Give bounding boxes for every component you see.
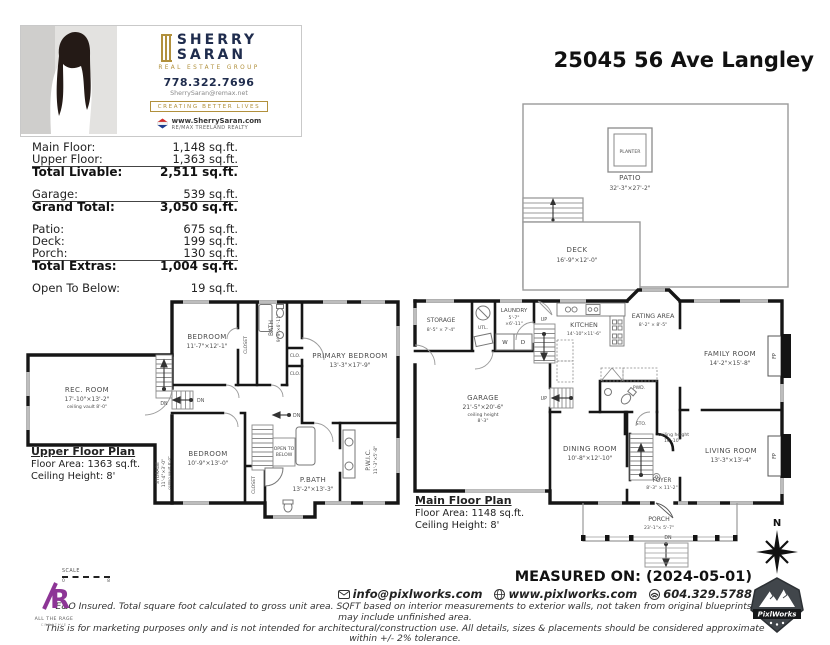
bedroom-bottom-label: BEDROOM: [188, 450, 227, 458]
closet-top-label: CLOSET: [243, 336, 249, 354]
primary-bedroom-label: PRIMARY BEDROOM: [312, 352, 387, 360]
rec-room-note: ceiling vault 8'-0": [67, 404, 107, 410]
family-room-label: FAMILY ROOM: [704, 350, 756, 358]
contact-email-text: info@pixlworks.com: [353, 587, 483, 601]
storage-note: ceiling vault 8'-0": [167, 456, 172, 490]
deck-outline: [523, 222, 640, 290]
globe-icon: [494, 589, 505, 600]
fireplace-label: FP: [772, 453, 778, 459]
row-label: Garage:: [32, 189, 78, 201]
table-row-total: Grand Total:3,050 sq.ft.: [32, 202, 238, 214]
main-plan-title-block: Main Floor Plan Floor Area: 1148 sq.ft. …: [415, 494, 524, 531]
kitchen-label: KITCHEN: [570, 321, 598, 329]
upper-plan-area: Floor Area: 1363 sq.ft.: [31, 459, 140, 470]
upper-plan-ceiling: Ceiling Height: 8': [31, 471, 140, 482]
bedroom-top-dims: 11'-7"×12'-1": [186, 343, 227, 350]
scale-start: 0: [62, 579, 65, 584]
disclaimer-line1: E&O Insured. Total square foot calculate…: [45, 602, 765, 624]
row-label: Grand Total:: [32, 202, 115, 214]
up-label: UP: [541, 396, 548, 402]
area-summary-table: Main Floor:1,148 sq.ft. Upper Floor:1,36…: [32, 142, 238, 295]
agent-last-name: SARAN: [177, 48, 257, 63]
photo-wall: [21, 26, 55, 134]
main-plan-title: Main Floor Plan: [415, 494, 524, 507]
foyer-label: FOYER: [653, 478, 672, 484]
storage-label: STORAGE: [155, 462, 161, 484]
agent-info: SHERRY SARAN REAL ESTATE GROUP 778.322.7…: [117, 26, 301, 136]
rec-room-label: REC. ROOM: [65, 386, 109, 394]
patio-deck-plan: PLANTER PATIO 32'-3"×27'-2" DN DECK 16'-…: [515, 96, 800, 292]
storage-label: STORAGE: [427, 317, 456, 324]
floorplan-flyer: { "page": {"address": "25045 56 Ave Lang…: [0, 0, 830, 641]
contact-row: info@pixlworks.com www.pixlworks.com 604…: [338, 587, 752, 601]
rec-room-dims: 17'-10"×13'-2": [65, 396, 110, 403]
dining-room-label: DINING ROOM: [563, 445, 617, 453]
row-label: Porch:: [32, 248, 68, 260]
dn-label: DN: [197, 398, 205, 404]
bath-label: BATH: [268, 320, 275, 336]
creative-studio-logo: R ALL THE RAGE CREATIVE: [24, 580, 84, 627]
svg-text:R: R: [50, 585, 70, 612]
agency-group-label: REAL ESTATE GROUP: [158, 65, 259, 71]
property-address: 25045 56 Ave Langley: [554, 48, 814, 72]
stair-note1: ceiling height: [658, 432, 689, 438]
primary-bedroom-dims: 13'-3"×17'-9": [329, 362, 370, 369]
bedroom-bottom-dims: 10'-9"×13'-0": [187, 460, 228, 467]
row-value: 1,363 sq.ft.: [172, 154, 238, 166]
row-value: 539 sq.ft.: [183, 189, 238, 201]
row-label: Total Livable:: [32, 167, 122, 179]
contact-website-text: www.pixlworks.com: [508, 587, 637, 601]
closet-bottom-label: CLOSET: [251, 476, 257, 494]
patio-label: PATIO: [619, 174, 641, 182]
creative-studio-sub: CREATIVE: [24, 622, 84, 627]
planter: PLANTER: [608, 128, 652, 172]
open-to-below-line2: BELOW: [276, 452, 293, 458]
eating-area-dims: 8'-2" × 8'-5": [639, 322, 668, 328]
up-label: UP: [541, 317, 548, 323]
contact-email[interactable]: info@pixlworks.com: [338, 587, 483, 601]
garage-note1: ceiling height: [467, 412, 498, 418]
agent-photo: [21, 26, 117, 134]
dn-label: DN: [160, 401, 168, 407]
powder-label: PWD.: [633, 385, 645, 391]
laundry-dims2: ×6'-11": [505, 321, 523, 327]
p-bath-dims: 13'-2"×13'-3": [292, 486, 333, 493]
agent-email[interactable]: SherrySaran@remax.net: [170, 90, 248, 97]
scale-bar: SCALE 0 8: [62, 569, 114, 584]
dn-label: DN: [293, 413, 301, 419]
utility-label: UTL.: [478, 325, 488, 331]
fireplace-label: FP: [772, 353, 778, 359]
contact-website[interactable]: www.pixlworks.com: [494, 587, 637, 601]
contact-phone[interactable]: 604.329.5788: [649, 587, 752, 601]
main-fireplaces: FP FP: [768, 334, 791, 478]
dining-room-dims: 10'-8"×12'-10": [568, 455, 613, 462]
compass-rose: N: [752, 512, 802, 574]
living-room-dims: 13'-3"×13'-4": [710, 457, 751, 464]
main-plan-area: Floor Area: 1148 sq.ft.: [415, 508, 524, 519]
storage-dims: 8'-5" × 7'-4": [427, 327, 456, 333]
living-room-label: LIVING ROOM: [705, 447, 757, 455]
agent-brokerage: RE/MAX TREELAND REALTY: [172, 125, 262, 131]
family-room-dims: 14'-2"×15'-8": [709, 360, 750, 367]
p-bath-label: P.BATH: [300, 476, 326, 484]
north-label: N: [773, 518, 781, 529]
dryer-label: D: [521, 340, 525, 346]
row-value: 3,050 sq.ft.: [160, 202, 238, 214]
garage-note2: 8'-3": [478, 418, 489, 424]
main-floor-plan: FP FP STORAGE 8'-5" × 7'-4" UTL. LAUNDRY…: [410, 288, 810, 578]
garage-label: GARAGE: [467, 394, 499, 402]
main-porch: [581, 503, 738, 567]
row-label: Total Extras:: [32, 261, 117, 273]
phone-icon: [649, 589, 660, 600]
hutch-detail: [601, 368, 623, 381]
agent-website[interactable]: www.SherrySaran.com: [172, 117, 262, 125]
table-row-total: Total Extras:1,004 sq.ft.: [32, 261, 238, 273]
agency-logo: SHERRY SARAN: [161, 33, 257, 63]
eating-area-label: EATING AREA: [632, 312, 675, 320]
foyer-dims: 8'-3" × 11'-2": [646, 485, 677, 491]
p-wic-dims: 11'-3"×5'-8": [373, 446, 379, 475]
scale-label: SCALE: [62, 569, 114, 574]
agent-first-name: SHERRY: [177, 33, 257, 48]
clo1-label: CLO.: [290, 353, 301, 359]
patio-dims: 32'-3"×27'-2": [609, 185, 650, 192]
row-value: 2,511 sq.ft.: [160, 167, 238, 179]
bedroom-top-label: BEDROOM: [187, 333, 226, 341]
agent-web-row: www.SherrySaran.com RE/MAX TREELAND REAL…: [157, 117, 262, 131]
scale-end: 8: [107, 579, 110, 584]
laundry-dims: 5'-7": [509, 315, 520, 321]
kitchen-dims: 14'-10"×11'-6": [567, 331, 601, 337]
deck-dims: 16'-9"×12'-0": [556, 257, 597, 264]
deck-label: DECK: [567, 246, 588, 254]
row-label: Upper Floor:: [32, 154, 103, 166]
table-row-total: Total Livable:2,511 sq.ft.: [32, 167, 238, 179]
garage-dims: 21'-5"×20'-6": [462, 404, 503, 411]
porch-label: PORCH: [648, 516, 670, 523]
agent-phone[interactable]: 778.322.7696: [164, 76, 255, 89]
remax-balloon-icon: [157, 118, 168, 130]
pixlworks-name: PixlWorks: [758, 611, 797, 619]
columns-icon: [161, 34, 172, 62]
stair-note2: 16'-10": [664, 438, 681, 444]
agent-branding-card: SHERRY SARAN REAL ESTATE GROUP 778.322.7…: [20, 25, 302, 137]
disclaimer-block: E&O Insured. Total square foot calculate…: [45, 602, 765, 645]
bath-dims: 9'-9"×6'-11": [276, 314, 282, 343]
pixlworks-badge: PixlWorks: [746, 576, 808, 634]
scale-line: [62, 576, 110, 578]
dn-label: DN: [664, 535, 672, 541]
open-to-below-line1: OPEN TO: [274, 446, 295, 452]
disclaimer-line2: This is for marketing purposes only and …: [45, 624, 765, 645]
p-wic-label: P.W.I.C.: [365, 449, 372, 471]
laundry-label: LAUNDRY: [501, 308, 528, 314]
measured-on-date: MEASURED ON: (2024-05-01): [515, 569, 752, 585]
sto-label: STO.: [636, 421, 647, 427]
upper-plan-title-block: Upper Floor Plan Floor Area: 1363 sq.ft.…: [31, 445, 140, 482]
upper-plan-title: Upper Floor Plan: [31, 445, 140, 458]
planter-label: PLANTER: [620, 149, 642, 155]
all-the-rage-monogram-icon: R: [37, 580, 71, 612]
clo2-label: CLO.: [290, 371, 301, 377]
row-value: 130 sq.ft.: [183, 248, 238, 260]
porch-dims: 23'-1"× 5'-7": [644, 525, 674, 531]
row-value: 1,004 sq.ft.: [160, 261, 238, 273]
email-icon: [338, 590, 350, 599]
upper-floor-plan: REC. ROOM 17'-10"×13'-2" ceiling vault 8…: [25, 288, 415, 533]
main-plan-ceiling: Ceiling Height: 8': [415, 520, 524, 531]
agent-tagline: CREATING BETTER LIVES: [150, 101, 269, 112]
contact-phone-text: 604.329.5788: [663, 587, 752, 601]
main-pantry: [557, 340, 657, 382]
washer-label: W: [502, 340, 508, 346]
